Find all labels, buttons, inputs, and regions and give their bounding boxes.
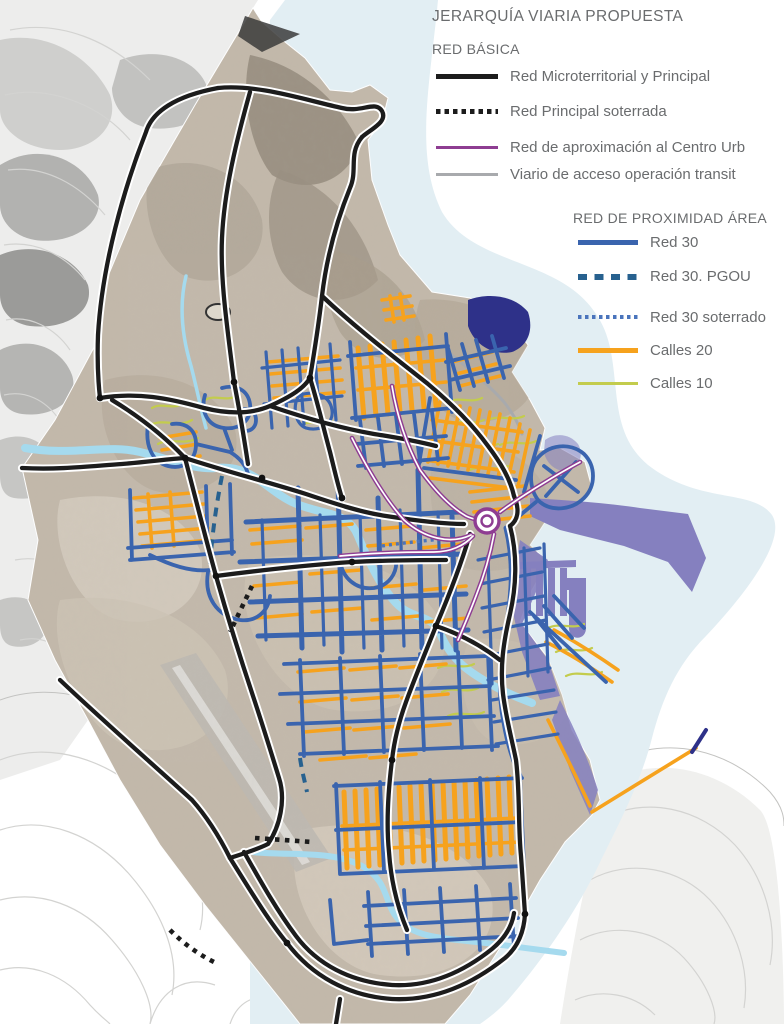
legend-item-label: Red 30. PGOU: [650, 268, 751, 285]
line-swatch-solid-black: [436, 74, 498, 79]
legend-item-red-principal-soterrada: Red Principal soterrada: [0, 103, 784, 123]
legend-item-label: Calles 20: [650, 342, 713, 359]
line-swatch-dotted-black: [436, 109, 498, 114]
line-swatch-solid-purple: [436, 146, 498, 149]
legend-item-viario-acceso: Viario de acceso operación transit: [0, 166, 784, 186]
legend-item-label: Calles 10: [650, 375, 713, 392]
line-swatch-solid-blue: [578, 240, 638, 245]
legend-item-calles20: Calles 20: [0, 342, 784, 362]
legend-item-calles10: Calles 10: [0, 375, 784, 395]
legend-item-label: Red 30: [650, 234, 698, 251]
legend-item-red30-soterrado: Red 30 soterrado: [0, 309, 784, 329]
legend-item-label: Red Microterritorial y Principal: [510, 68, 710, 85]
legend-section-red-basica: RED BÁSICA: [432, 41, 520, 57]
line-swatch-solid-gray: [436, 173, 498, 176]
legend-item-label: Viario de acceso operación transit: [510, 166, 736, 183]
legend-title: JERARQUÍA VIARIA PROPUESTA: [432, 8, 683, 26]
line-swatch-solid-orange: [578, 348, 638, 353]
legend-item-red30-pgou: Red 30. PGOU: [0, 268, 784, 288]
line-swatch-solid-green: [578, 382, 638, 385]
legend-item-label: Red Principal soterrada: [510, 103, 667, 120]
line-swatch-dashed-blue: [578, 274, 638, 280]
legend-item-label: Red de aproximación al Centro Urb: [510, 139, 745, 156]
legend-section-red-proximidad: RED DE PROXIMIDAD ÁREA: [573, 210, 767, 226]
roundabout: [475, 509, 499, 533]
legend-item-red-microterritorial: Red Microterritorial y Principal: [0, 68, 784, 88]
line-swatch-dotted-blue: [578, 315, 638, 319]
legend-item-label: Red 30 soterrado: [650, 309, 766, 326]
legend-item-red30: Red 30: [0, 234, 784, 254]
legend-item-red-aproximacion: Red de aproximación al Centro Urb: [0, 139, 784, 159]
